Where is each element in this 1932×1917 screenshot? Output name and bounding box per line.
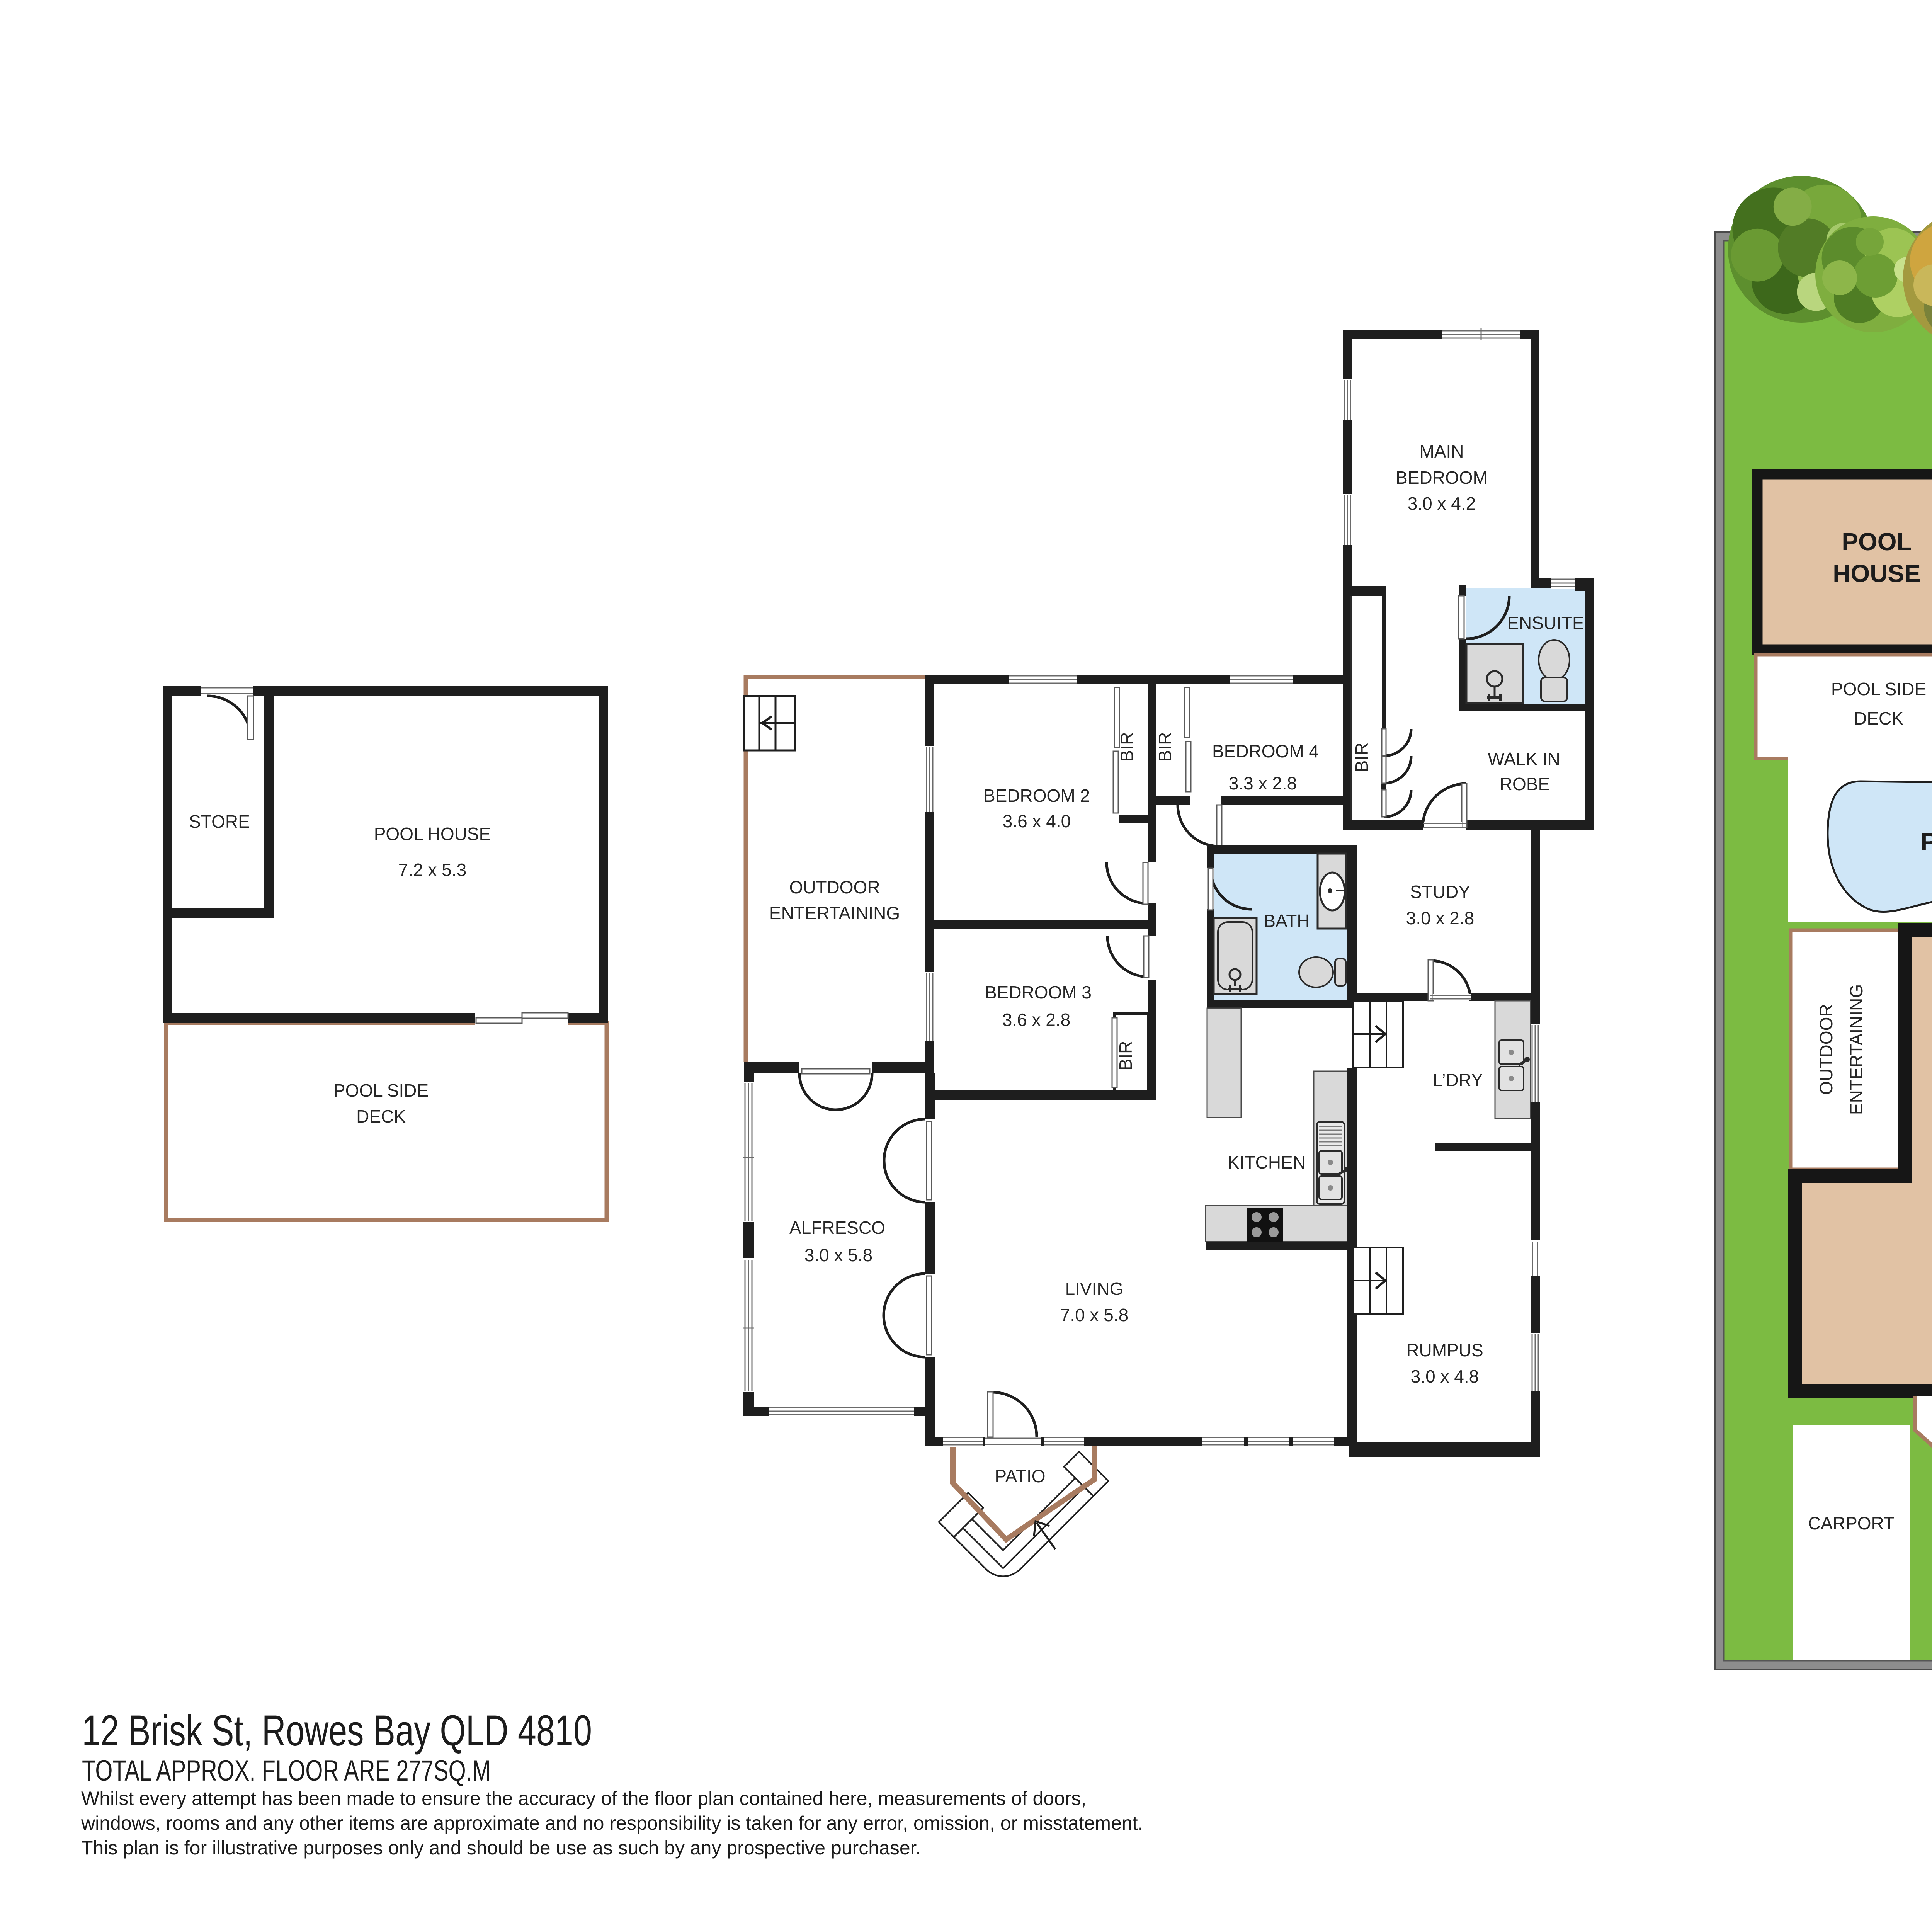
svg-text:3.0 x 2.8: 3.0 x 2.8 [1406,908,1474,928]
svg-text:BIR: BIR [1155,732,1175,762]
svg-text:OUTDOOR: OUTDOOR [1816,1004,1836,1095]
svg-text:BEDROOM 3: BEDROOM 3 [985,982,1092,1002]
svg-text:12 Brisk St, Rowes Bay QLD 481: 12 Brisk St, Rowes Bay QLD 4810 [82,1706,592,1755]
svg-text:BATH: BATH [1264,911,1310,931]
svg-text:DECK: DECK [1854,708,1903,728]
svg-text:Whilst every attempt has been: Whilst every attempt has been made to en… [81,1788,1086,1809]
svg-text:ALFRESCO: ALFRESCO [789,1218,885,1238]
svg-text:POOL: POOL [1842,528,1912,556]
svg-text:PATIO: PATIO [995,1466,1045,1486]
svg-text:OUTDOOR: OUTDOOR [789,877,880,897]
svg-text:CARPORT: CARPORT [1808,1513,1895,1533]
svg-text:BIR: BIR [1352,743,1372,772]
svg-text:windows, rooms and any other i: windows, rooms and any other items are a… [81,1812,1143,1834]
svg-text:RUMPUS: RUMPUS [1406,1340,1483,1360]
svg-text:BEDROOM 4: BEDROOM 4 [1212,741,1319,761]
svg-text:3.3 x 2.8: 3.3 x 2.8 [1229,773,1297,793]
svg-text:3.6 x 4.0: 3.6 x 4.0 [1003,811,1071,831]
svg-text:LIVING: LIVING [1065,1279,1124,1299]
svg-text:This plan is for illustrative: This plan is for illustrative purposes o… [81,1837,921,1859]
svg-text:ROBE: ROBE [1500,774,1550,794]
svg-text:KITCHEN: KITCHEN [1228,1152,1306,1172]
svg-text:ENSUITE: ENSUITE [1507,613,1584,633]
svg-text:POOL SIDE: POOL SIDE [333,1080,429,1101]
svg-text:DECK: DECK [356,1106,406,1126]
svg-text:BIR: BIR [1117,732,1137,762]
svg-text:7.2 x 5.3: 7.2 x 5.3 [398,860,466,880]
svg-text:3.0 x 4.8: 3.0 x 4.8 [1411,1366,1479,1386]
svg-text:BEDROOM 2: BEDROOM 2 [983,786,1090,806]
svg-text:TOTAL APPROX. FLOOR ARE 277SQ.: TOTAL APPROX. FLOOR ARE 277SQ.M [82,1754,491,1787]
svg-text:ENTERTAINING: ENTERTAINING [769,903,900,923]
svg-text:POOL: POOL [1920,828,1932,856]
svg-text:3.6 x 2.8: 3.6 x 2.8 [1002,1010,1070,1030]
svg-text:POOL SIDE: POOL SIDE [1831,679,1926,699]
svg-text:7.0 x 5.8: 7.0 x 5.8 [1060,1305,1128,1325]
svg-text:MAIN: MAIN [1420,441,1464,461]
svg-text:STORE: STORE [189,811,250,832]
svg-text:WALK IN: WALK IN [1488,749,1560,769]
svg-text:BIR: BIR [1116,1041,1136,1071]
svg-text:ENTERTAINING: ENTERTAINING [1846,984,1866,1115]
svg-text:L’DRY: L’DRY [1433,1070,1483,1090]
svg-text:3.0 x 5.8: 3.0 x 5.8 [804,1245,872,1265]
svg-text:HOUSE: HOUSE [1833,560,1921,587]
svg-text:3.0 x 4.2: 3.0 x 4.2 [1408,493,1476,514]
svg-text:BEDROOM: BEDROOM [1396,468,1488,488]
svg-text:STUDY: STUDY [1410,882,1470,902]
svg-text:POOL HOUSE: POOL HOUSE [374,824,491,844]
